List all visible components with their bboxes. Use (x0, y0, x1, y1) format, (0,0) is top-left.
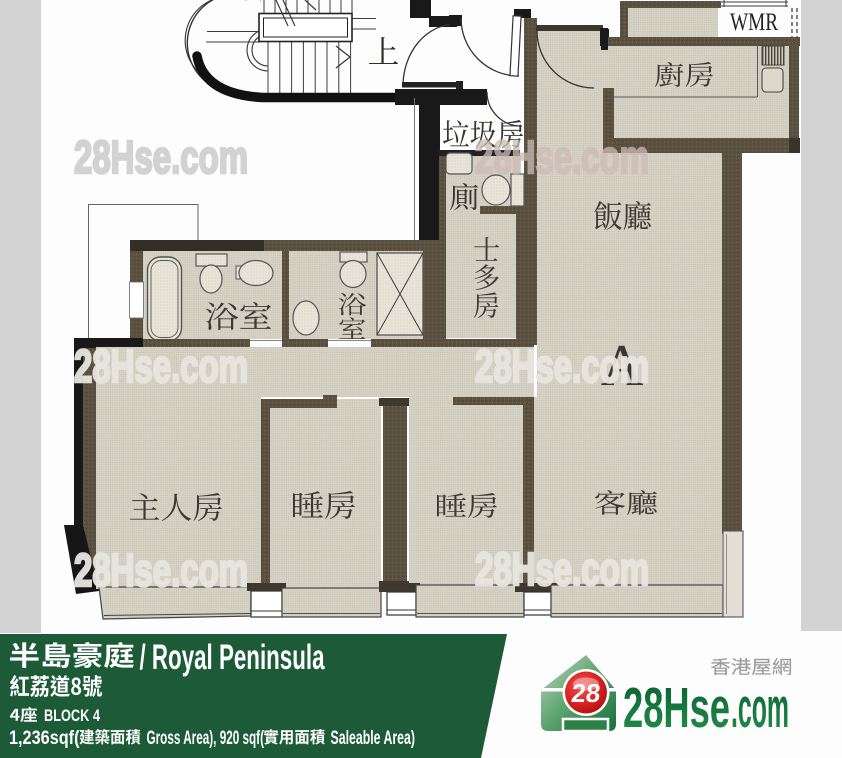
svg-text:28Hse.com: 28Hse.com (475, 543, 649, 595)
svg-text:28Hse: 28Hse (623, 676, 730, 740)
svg-text:Saleable Area): Saleable Area) (331, 728, 416, 749)
svg-text:BLOCK 4: BLOCK 4 (44, 707, 101, 725)
svg-text:28Hse.com: 28Hse.com (475, 340, 649, 392)
svg-text:WMR: WMR (730, 9, 778, 36)
svg-text:/ Royal Peninsula: / Royal Peninsula (140, 638, 325, 677)
svg-text:.com: .com (731, 676, 789, 740)
svg-text:28: 28 (570, 678, 602, 708)
svg-text:28Hse.com: 28Hse.com (475, 131, 649, 183)
svg-text:28Hse.com: 28Hse.com (74, 131, 248, 183)
svg-text:28Hse.com: 28Hse.com (74, 340, 248, 392)
svg-text:28Hse.com: 28Hse.com (74, 544, 248, 596)
svg-text:Gross Area), 920 sqf(: Gross Area), 920 sqf( (147, 728, 265, 749)
svg-text:1,236sqf(: 1,236sqf( (9, 728, 80, 749)
